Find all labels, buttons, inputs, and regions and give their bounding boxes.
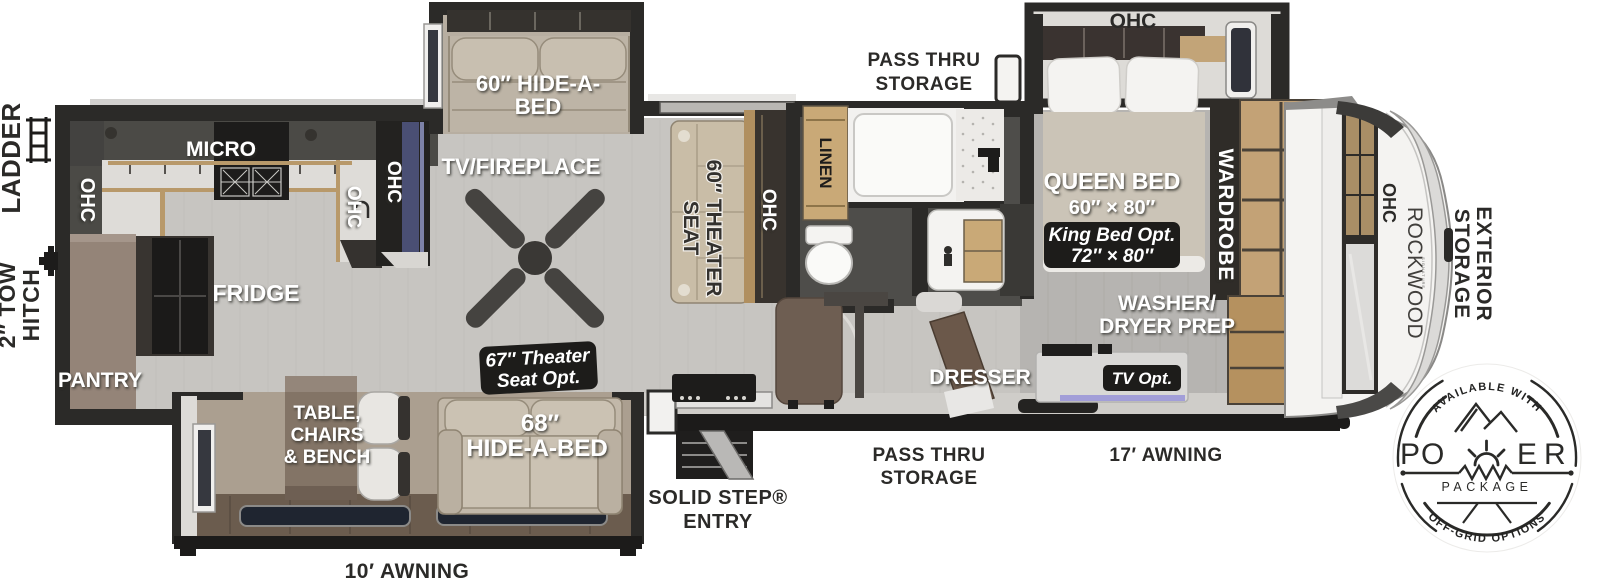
svg-text:SIGNATURE: SIGNATURE — [1421, 257, 1426, 289]
svg-text:OHC: OHC — [1379, 183, 1399, 223]
svg-text:HITCH: HITCH — [18, 269, 44, 342]
svg-text:CHAIRS: CHAIRS — [291, 425, 364, 446]
svg-text:OHC: OHC — [1110, 10, 1157, 33]
svg-text:E: E — [1517, 438, 1537, 471]
svg-text:PANTRY: PANTRY — [58, 369, 142, 392]
svg-text:WASHER/: WASHER/ — [1118, 292, 1216, 315]
svg-text:PASS THRU: PASS THRU — [868, 50, 981, 71]
svg-text:60″ × 80″: 60″ × 80″ — [1069, 197, 1156, 219]
svg-text:DRESSER: DRESSER — [929, 366, 1031, 389]
svg-text:FRIDGE: FRIDGE — [213, 280, 300, 306]
svg-text:BED: BED — [515, 94, 561, 119]
svg-text:OHC: OHC — [383, 161, 404, 204]
svg-text:TV/FIREPLACE: TV/FIREPLACE — [442, 154, 601, 179]
svg-text:LADDER: LADDER — [0, 102, 26, 213]
svg-text:OHC: OHC — [758, 189, 779, 232]
svg-text:King Bed Opt.: King Bed Opt. — [1049, 225, 1176, 246]
svg-text:TV Opt.: TV Opt. — [1112, 369, 1172, 388]
svg-text:2″ TOW: 2″ TOW — [0, 262, 20, 348]
svg-text:SOLID STEP®: SOLID STEP® — [648, 487, 787, 509]
svg-text:TABLE,: TABLE, — [293, 403, 360, 424]
svg-text:O: O — [1421, 438, 1444, 471]
svg-text:SEAT: SEAT — [679, 201, 702, 256]
svg-text:OHC: OHC — [343, 186, 364, 229]
svg-text:68″: 68″ — [521, 410, 560, 437]
svg-text:QUEEN BED: QUEEN BED — [1044, 168, 1181, 194]
svg-text:PACKAGE: PACKAGE — [1441, 480, 1532, 494]
svg-text:60″ THEATER: 60″ THEATER — [702, 160, 725, 297]
svg-text:EXTERIOR: EXTERIOR — [1472, 206, 1495, 321]
svg-text:& BENCH: & BENCH — [284, 447, 371, 468]
svg-text:Seat Opt.: Seat Opt. — [496, 367, 580, 392]
svg-text:OHC: OHC — [76, 178, 98, 222]
svg-text:72″ × 80″: 72″ × 80″ — [1071, 246, 1154, 267]
svg-text:STORAGE: STORAGE — [1450, 209, 1473, 319]
svg-text:ENTRY: ENTRY — [683, 511, 753, 533]
svg-text:STORAGE: STORAGE — [880, 468, 977, 489]
svg-text:10′ AWNING: 10′ AWNING — [345, 560, 470, 580]
svg-text:60″ HIDE-A-: 60″ HIDE-A- — [476, 71, 600, 96]
svg-text:PASS THRU: PASS THRU — [873, 445, 986, 466]
svg-text:LINEN: LINEN — [816, 138, 835, 189]
svg-text:WARDROBE: WARDROBE — [1214, 149, 1237, 282]
svg-text:MICRO: MICRO — [186, 138, 256, 161]
svg-text:R: R — [1544, 438, 1566, 471]
svg-text:P: P — [1400, 438, 1420, 471]
svg-text:STORAGE: STORAGE — [875, 74, 972, 95]
svg-text:HIDE-A-BED: HIDE-A-BED — [466, 435, 607, 462]
svg-text:17′ AWNING: 17′ AWNING — [1109, 445, 1222, 466]
svg-text:DRYER PREP: DRYER PREP — [1099, 315, 1235, 338]
